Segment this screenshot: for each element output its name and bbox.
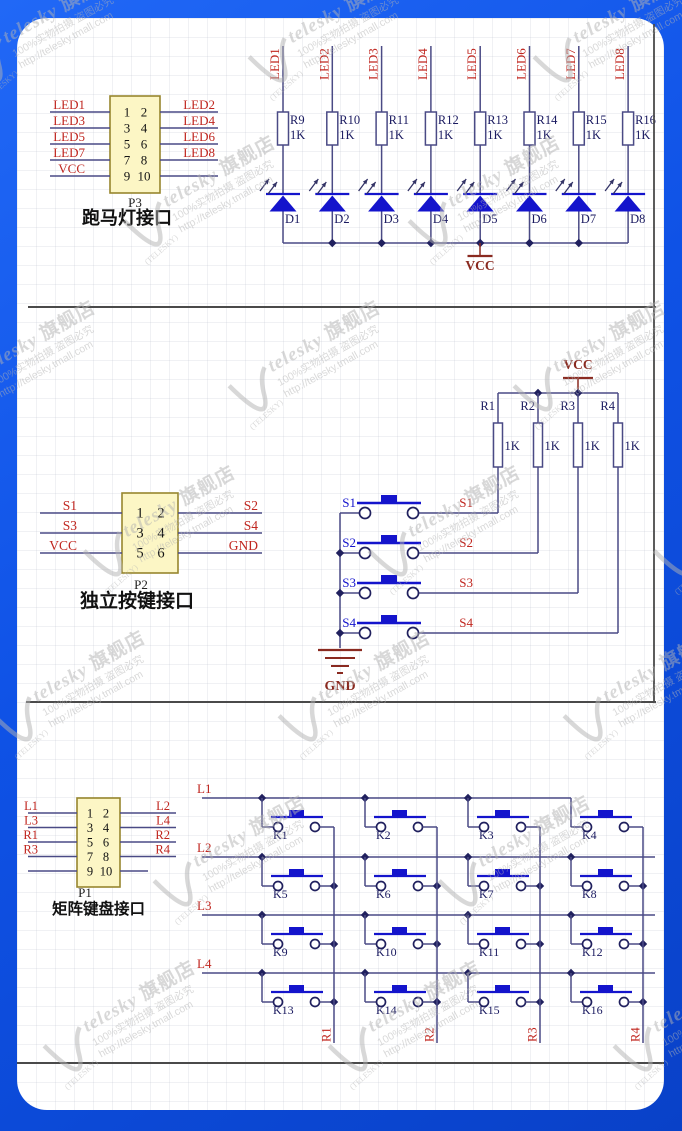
switch-cap [495, 869, 510, 876]
switch-terminal [414, 882, 423, 891]
net-label: LED5 [53, 129, 85, 144]
pin-number: 2 [157, 506, 164, 522]
switch-cap [289, 869, 304, 876]
pin-number: 6 [141, 137, 148, 152]
switch-terminal [360, 628, 371, 639]
gnd-label: GND [324, 679, 355, 694]
diode-name: D6 [532, 212, 547, 226]
switch-terminal [311, 940, 320, 949]
pin-number: 5 [136, 546, 143, 562]
connector-P2 [122, 493, 178, 573]
connector-ref: P1 [78, 885, 92, 900]
pin-number: 8 [141, 153, 148, 168]
switch-terminal [414, 940, 423, 949]
connector-caption: 独立按键接口 [80, 589, 194, 612]
pin-number: 4 [157, 526, 165, 542]
net-label: R1 [23, 828, 38, 842]
led-triangle [270, 196, 297, 212]
net-label: LED3 [53, 113, 85, 128]
net-label: S2 [244, 498, 258, 513]
resistor-name: R11 [389, 113, 409, 127]
net-label: R3 [23, 843, 38, 857]
resistor-name: R14 [537, 113, 559, 127]
switch-cap [392, 985, 407, 992]
row-net-label: L3 [197, 898, 211, 913]
pin-number: 2 [141, 105, 148, 120]
switch-cap [495, 810, 510, 817]
key-name: K3 [479, 828, 494, 842]
resistor-value: 1K [389, 128, 404, 142]
switch-terminal [408, 588, 419, 599]
net-label: S4 [459, 615, 473, 630]
pin-number: 9 [124, 169, 131, 184]
switch-cap [289, 985, 304, 992]
resistor-body [278, 112, 289, 145]
resistor-value: 1K [290, 128, 305, 142]
net-label: LED7 [53, 145, 85, 160]
net-label: LED6 [183, 129, 215, 144]
diode-name: D3 [384, 212, 399, 226]
pin-number: 9 [87, 865, 93, 879]
resistor-body [524, 112, 535, 145]
diode-name: D2 [334, 212, 349, 226]
switch-name: S1 [342, 495, 356, 510]
net-label: R4 [155, 843, 170, 857]
switch-cap [495, 927, 510, 934]
key-name: K4 [582, 828, 597, 842]
switch-terminal [360, 548, 371, 559]
net-label: S2 [459, 535, 473, 550]
resistor-name: R10 [339, 113, 360, 127]
net-label: LED4 [183, 113, 215, 128]
key-name: K2 [376, 828, 391, 842]
switch-terminal [620, 998, 629, 1007]
resistor-body [614, 423, 623, 467]
junction-dot [328, 239, 336, 247]
switch-terminal [414, 823, 423, 832]
net-label: LED1 [53, 97, 85, 112]
pin-number: 7 [124, 153, 131, 168]
pin-number: 1 [124, 105, 131, 120]
resistor-value: 1K [505, 439, 520, 453]
resistor-name: R3 [560, 399, 575, 413]
net-label-vertical: LED8 [612, 48, 627, 80]
resistor-name: R9 [290, 113, 305, 127]
net-label: R2 [155, 828, 170, 842]
key-name: K10 [376, 945, 397, 959]
led-triangle [319, 196, 346, 212]
diode-name: D7 [581, 212, 596, 226]
net-label: LED2 [183, 97, 215, 112]
row-net-label: L1 [197, 781, 211, 796]
col-net-label-vertical: R3 [526, 1027, 540, 1042]
switch-terminal [620, 882, 629, 891]
net-label: S3 [459, 575, 473, 590]
switch-terminal [517, 998, 526, 1007]
vcc-label: VCC [465, 258, 494, 273]
switch-cap [381, 615, 397, 623]
led-triangle [467, 196, 494, 212]
key-name: K11 [479, 945, 499, 959]
switch-cap [381, 495, 397, 503]
row-net-label: L2 [197, 840, 211, 855]
pin-number: 10 [100, 865, 113, 879]
key-name: K13 [273, 1003, 294, 1017]
switch-cap [289, 810, 304, 817]
pin-number: 5 [87, 836, 93, 850]
switch-cap [495, 985, 510, 992]
diode-name: D5 [482, 212, 497, 226]
resistor-body [623, 112, 634, 145]
key-name: K14 [376, 1003, 397, 1017]
led-triangle [368, 196, 395, 212]
resistor-name: R15 [586, 113, 607, 127]
switch-terminal [311, 882, 320, 891]
connector-caption: 跑马灯接口 [82, 207, 172, 228]
net-label: LED8 [183, 145, 215, 160]
resistor-body [327, 112, 338, 145]
connector-P1 [77, 798, 120, 887]
col-net-label-vertical: R2 [423, 1027, 437, 1042]
led-triangle [615, 196, 642, 212]
pin-number: 3 [87, 821, 93, 835]
switch-terminal [620, 940, 629, 949]
led-triangle [565, 196, 592, 212]
junction-dot [575, 239, 583, 247]
resistor-name: R2 [520, 399, 535, 413]
resistor-value: 1K [586, 128, 601, 142]
switch-terminal [311, 823, 320, 832]
net-label: S3 [63, 518, 78, 533]
switch-cap [598, 927, 613, 934]
schematic-drawing: 12LED1LED234LED3LED456LED5LED678LED7LED8… [0, 0, 682, 1131]
resistor-name: R4 [600, 399, 615, 413]
junction-dot [377, 239, 385, 247]
net-label: GND [229, 538, 258, 553]
switch-terminal [517, 823, 526, 832]
resistor-name: R12 [438, 113, 459, 127]
pin-number: 7 [87, 850, 93, 864]
net-label-vertical: LED6 [514, 48, 529, 80]
pin-number: 5 [124, 137, 131, 152]
junction-dot [525, 239, 533, 247]
switch-terminal [408, 628, 419, 639]
resistor-value: 1K [339, 128, 354, 142]
net-label: L4 [156, 814, 171, 828]
switch-name: S3 [342, 575, 356, 590]
pin-number: 1 [87, 807, 93, 821]
schematic-product-image: 12LED1LED234LED3LED456LED5LED678LED7LED8… [0, 0, 682, 1131]
resistor-value: 1K [585, 439, 600, 453]
connector-ref: P2 [134, 577, 148, 592]
switch-cap [392, 810, 407, 817]
switch-cap [598, 985, 613, 992]
pin-number: 3 [124, 121, 131, 136]
switch-terminal [408, 548, 419, 559]
led-triangle [417, 196, 444, 212]
resistor-body [573, 112, 584, 145]
switch-terminal [517, 940, 526, 949]
switch-terminal [408, 508, 419, 519]
key-name: K8 [582, 887, 597, 901]
key-name: K12 [582, 945, 603, 959]
col-net-label-vertical: R1 [320, 1027, 334, 1042]
row-net-label: L4 [197, 956, 212, 971]
pin-number: 2 [103, 807, 109, 821]
pin-number: 1 [136, 506, 143, 522]
net-label: L2 [156, 799, 170, 813]
resistor-value: 1K [537, 128, 552, 142]
switch-terminal [414, 998, 423, 1007]
key-name: K7 [479, 887, 494, 901]
resistor-value: 1K [438, 128, 453, 142]
switch-cap [381, 575, 397, 583]
junction-dot [427, 239, 435, 247]
col-net-label-vertical: R4 [629, 1027, 643, 1042]
net-label-vertical: LED7 [563, 48, 578, 80]
net-label: S1 [459, 495, 473, 510]
switch-name: S2 [342, 535, 356, 550]
resistor-value: 1K [635, 128, 650, 142]
switch-cap [392, 927, 407, 934]
diode-name: D1 [285, 212, 300, 226]
resistor-body [475, 112, 486, 145]
resistor-value: 1K [545, 439, 560, 453]
key-name: K5 [273, 887, 288, 901]
net-label-vertical: LED4 [415, 48, 430, 80]
junction-dot [336, 589, 344, 597]
connector-caption: 矩阵键盘接口 [52, 899, 145, 918]
resistor-body [494, 423, 503, 467]
diode-name: D4 [433, 212, 449, 226]
resistor-body [376, 112, 387, 145]
pin-number: 10 [138, 169, 151, 184]
switch-terminal [620, 823, 629, 832]
resistor-body [534, 423, 543, 467]
key-name: K6 [376, 887, 391, 901]
key-name: K16 [582, 1003, 603, 1017]
net-label: VCC [58, 161, 85, 176]
net-label: S4 [244, 518, 259, 533]
switch-terminal [360, 588, 371, 599]
resistor-name: R16 [635, 113, 656, 127]
diode-name: D8 [630, 212, 645, 226]
net-label: S1 [63, 498, 77, 513]
junction-dot [336, 629, 344, 637]
net-label-vertical: LED1 [267, 48, 282, 80]
pin-number: 3 [136, 526, 143, 542]
switch-cap [598, 869, 613, 876]
pin-number: 4 [141, 121, 148, 136]
switch-cap [289, 927, 304, 934]
resistor-body [425, 112, 436, 145]
net-label: L3 [24, 814, 38, 828]
net-label: L1 [24, 799, 38, 813]
junction-dot [336, 549, 344, 557]
vcc-label: VCC [563, 357, 592, 372]
key-name: K9 [273, 945, 288, 959]
net-label-vertical: LED5 [464, 48, 479, 80]
switch-terminal [311, 998, 320, 1007]
net-label-vertical: LED2 [316, 48, 331, 80]
resistor-body [574, 423, 583, 467]
switch-terminal [360, 508, 371, 519]
key-name: K15 [479, 1003, 500, 1017]
switch-cap [598, 810, 613, 817]
led-triangle [516, 196, 543, 212]
pin-number: 6 [157, 546, 164, 562]
pin-number: 4 [103, 821, 110, 835]
resistor-name: R1 [480, 399, 495, 413]
switch-name: S4 [342, 615, 356, 630]
connector-P3 [110, 96, 160, 193]
key-name: K1 [273, 828, 288, 842]
switch-cap [381, 535, 397, 543]
pin-number: 6 [103, 836, 109, 850]
net-label: VCC [49, 538, 77, 553]
resistor-value: 1K [487, 128, 502, 142]
pin-number: 8 [103, 850, 109, 864]
net-label-vertical: LED3 [366, 48, 381, 80]
switch-terminal [517, 882, 526, 891]
resistor-value: 1K [625, 439, 640, 453]
resistor-name: R13 [487, 113, 508, 127]
switch-cap [392, 869, 407, 876]
